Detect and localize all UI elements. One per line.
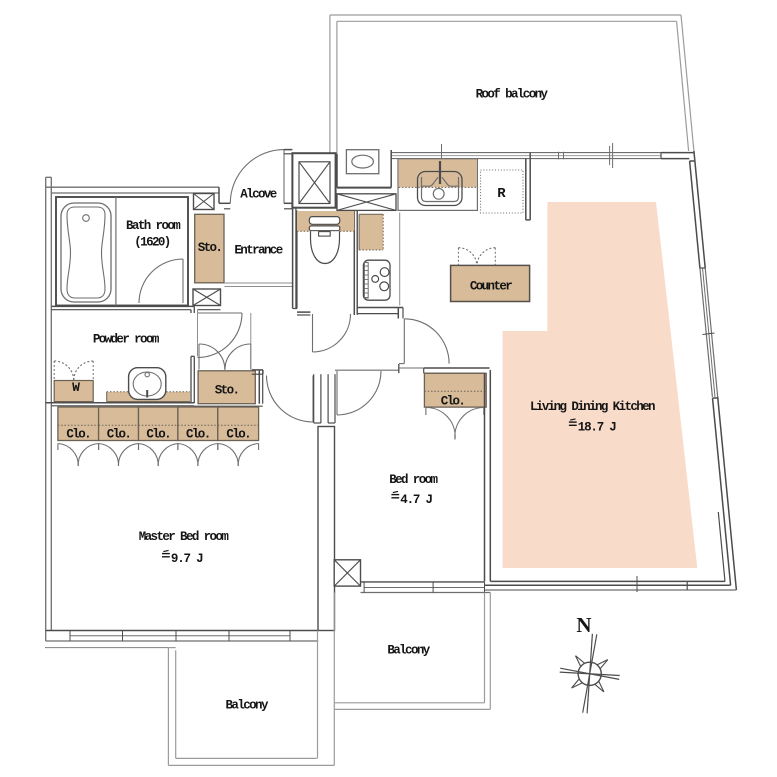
svg-text:Clo.: Clo. (441, 395, 465, 409)
svg-text:Sto.: Sto. (215, 384, 239, 398)
svg-text:Counter: Counter (470, 280, 512, 294)
svg-text:Living Dining Kitchen: Living Dining Kitchen (530, 400, 655, 414)
svg-text:Clo.: Clo. (66, 428, 90, 442)
svg-text:Clo.: Clo. (186, 428, 210, 442)
svg-text:Bath room: Bath room (126, 219, 181, 233)
svg-text:Bed room: Bed room (389, 473, 438, 487)
svg-text:Balcony: Balcony (226, 699, 269, 713)
svg-text:Entrance: Entrance (234, 244, 282, 258)
svg-text:R: R (497, 186, 506, 202)
svg-text:Sto.: Sto. (198, 241, 222, 255)
svg-text:18.7 J: 18.7 J (578, 421, 617, 435)
svg-text:W: W (72, 380, 80, 395)
svg-text:N: N (576, 613, 591, 637)
svg-text:Roof balcony: Roof balcony (476, 88, 549, 102)
svg-text:Clo.: Clo. (146, 428, 170, 442)
svg-text:4.7 J: 4.7 J (400, 493, 432, 507)
svg-text:Balcony: Balcony (387, 644, 430, 658)
svg-text:(1620): (1620) (134, 236, 170, 250)
svg-text:Clo.: Clo. (107, 428, 131, 442)
svg-text:Clo.: Clo. (226, 428, 250, 442)
svg-text:Powder room: Powder room (93, 333, 160, 347)
svg-text:Master Bed room: Master Bed room (139, 530, 230, 544)
svg-text:9.7 J: 9.7 J (171, 552, 203, 566)
svg-text:Alcove: Alcove (240, 188, 277, 202)
